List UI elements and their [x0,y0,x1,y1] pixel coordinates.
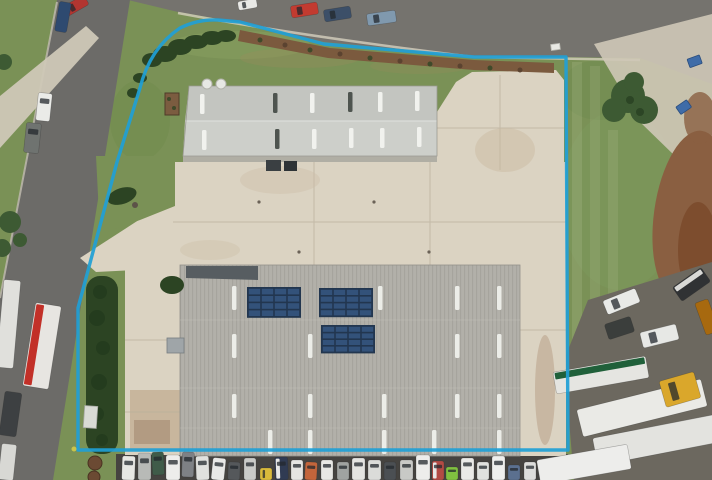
building-a-roof-lower [183,121,437,156]
vehicle-bottom_row [244,458,256,480]
vehicle-body [244,458,256,480]
concrete-stain [180,240,240,260]
skylight-strip [202,130,207,150]
skylight-strip [378,286,383,310]
skylight-strip [232,334,237,358]
tree-shadow [636,108,644,116]
vehicle-body [524,462,536,480]
solar-array [321,325,375,353]
vehicle-windshield [40,98,50,104]
aerial-photo-stage [0,0,712,480]
boundary-marker-post [551,43,561,50]
solar-panel-cell [334,303,345,308]
concrete-stain [475,128,535,172]
garden-tuft [160,276,184,294]
skylight-strip [497,334,502,358]
vehicle-bottom_row [196,456,210,480]
vehicle-bottom_row [166,455,180,480]
solar-panel-cell [362,327,373,332]
solar-panel-cell [336,340,347,345]
entry-awning [186,266,258,280]
vehicle-bottom_row [477,462,489,480]
solar-panel-cell [336,333,347,338]
vehicle-windshield [28,129,39,135]
skylight-strip [380,128,385,148]
shrub [258,38,263,43]
solar-array [319,288,373,317]
vehicle-bottom_row [151,452,164,476]
skylight-strip [275,129,280,149]
solar-panel-cell [321,303,332,308]
vehicle-stripe [276,459,281,479]
skylight-strip [232,286,237,310]
skylight-strip [382,394,387,418]
hedge-bush [93,285,107,299]
shrub [428,62,433,67]
vehicle-body [368,460,381,480]
rock [132,202,138,208]
vehicle-windshield [168,460,178,465]
vehicle-windshield [479,466,487,469]
solar-panel-cell [347,297,358,302]
skylight-strip [415,91,420,111]
round-tank [88,471,100,480]
apron-stain [134,420,170,444]
vehicle-body [400,460,413,480]
vehicle-windshield [373,14,380,23]
vehicle-bottom_row [492,456,505,480]
tree [602,98,626,122]
solar-panel-cell [262,303,273,309]
skylight-strip [497,394,502,418]
solar-panel-cell [323,333,334,338]
solar-panel-cell [321,310,332,315]
solar-panel-cell [349,327,360,332]
vehicle-windshield [230,465,238,469]
solar-panel-cell [362,347,373,352]
solar-panel-cell [336,347,347,352]
vehicle-bottom_row [337,462,349,480]
solar-panel-cell [347,290,358,295]
vehicle-bottom_row [432,461,444,480]
vehicle-body [182,452,195,477]
round-tank [88,456,102,470]
vehicle-windshield [386,466,394,469]
drain-pit [257,200,260,203]
vehicle-windshield [246,462,254,466]
vehicle-left_road [23,122,41,153]
hedge-bush [96,341,110,355]
vehicle-body [151,452,164,476]
solar-panel-cell [349,347,360,352]
solar-panel-cell [347,310,358,315]
vehicle-windshield [184,457,192,462]
solar-panel-cell [334,290,345,295]
solar-panel-cell [362,340,373,345]
vehicle-body [352,458,365,480]
vehicle-left_road [36,92,53,121]
vehicle-bottom_row [228,462,241,480]
solar-panel-cell [275,289,286,295]
vehicle-windshield [277,461,286,465]
solar-panel-cell [334,310,345,315]
vehicle-bottom_row [368,460,381,480]
electrical-box [167,338,184,353]
solar-panel-cell [249,289,260,295]
vehicle-windshield [434,465,442,468]
skylight-strip [455,286,460,310]
solar-panel-cell [288,310,299,316]
vehicle-windshield [140,458,149,463]
vehicle-bottom_row [524,462,536,480]
vehicle-body [305,462,318,480]
solar-panel-cell [249,296,260,302]
vehicle-bottom_row [122,456,136,480]
boundary-corner-marker [72,447,77,452]
drain-pit [297,250,300,253]
vehicle-windshield [418,460,428,465]
vehicle-body [508,465,520,480]
shrub [172,106,176,110]
shrub [368,56,373,61]
vehicle-windshield [124,461,133,466]
vehicle-windshield [323,464,331,468]
vehicle-body [211,457,226,480]
skylight-strip [308,334,313,358]
vehicle-bottom_row [384,462,396,480]
vehicle-body [23,122,41,153]
solar-panel-cell [288,289,299,295]
vehicle-bottom_row [291,460,303,480]
skylight-strip [348,92,353,112]
solar-panel-cell [249,303,260,309]
vehicle-windshield [339,466,347,469]
skylight-strip [417,127,422,147]
shrub [167,97,171,101]
shrub [308,48,313,53]
vehicle-bottom_row [352,458,365,480]
vehicle-windshield [526,466,534,469]
skylight-strip [232,394,237,418]
skylight-strip [378,92,383,112]
solar-panel-cell [262,310,273,316]
drain-pit [372,200,375,203]
solar-panel-cell [360,297,371,302]
vehicle-bottom_row [305,462,318,480]
building-south-warehouse [160,265,520,456]
skylight-strip [312,129,317,149]
solar-panel-cell [323,327,334,332]
solar-panel-cell [362,333,373,338]
white-container [83,406,98,429]
shrub [398,59,403,64]
aerial-photo [0,0,712,480]
vehicle-body [122,456,136,480]
vehicle-bottom_row [508,465,520,480]
solar-panel-cell [275,303,286,309]
roof-dome-vent [216,79,226,89]
hedge-bush [89,310,105,326]
ac-unit [284,161,297,171]
vehicle-body [416,455,430,480]
vehicle-windshield [293,464,301,468]
hedge-bush [216,30,236,42]
solar-panel-cell [349,340,360,345]
vehicle-body [36,92,53,121]
skylight-strip [455,394,460,418]
solar-array [247,287,301,318]
shrub [283,43,288,48]
solar-panel-cell [321,290,332,295]
skylight-strip [308,394,313,418]
tree [13,233,27,247]
solar-panel-cell [275,310,286,316]
vehicle-body [446,467,458,480]
shrub [488,66,493,71]
solar-panel-cell [336,327,347,332]
vehicle-windshield [370,464,379,468]
vehicle-windshield [263,470,265,478]
vehicle-windshield [510,468,518,471]
tree-shadow [626,96,634,104]
vehicle-windshield [198,461,207,466]
vehicle-body [291,460,303,480]
ac-unit [266,160,281,171]
vehicle-body [492,456,505,480]
vehicle-body [337,462,349,480]
solar-panel-cell [288,296,299,302]
vehicle-windshield [307,465,315,469]
garden-box [165,93,179,115]
vehicle-bottom_row [275,457,289,480]
skylight-strip [455,334,460,358]
vehicle-body [461,458,474,480]
vehicle-body [196,456,210,480]
solar-panel-cell [288,303,299,309]
solar-panel-cell [347,303,358,308]
solar-panel-cell [275,296,286,302]
vehicle-bottom_row [260,468,272,480]
vehicle-windshield [448,470,456,472]
tree [0,211,21,233]
shrub [518,68,523,73]
vehicle-body [166,455,180,480]
vehicle-body [228,462,241,480]
vehicle-windshield [463,462,472,466]
solar-panel-cell [249,310,260,316]
shrub [458,64,463,69]
vehicle-bottom_row [321,460,333,480]
solar-panel-cell [360,290,371,295]
tree [624,72,644,92]
vehicle-bottom_row [461,458,474,480]
shrub [338,52,343,57]
vehicle-windshield [402,464,411,468]
solar-panel-cell [262,289,273,295]
vehicle-body [384,462,396,480]
solar-panel-cell [334,297,345,302]
skylight-strip [273,93,278,113]
hedge-bush [96,434,108,446]
vehicle-bottom_row [211,457,226,480]
building-north-warehouse [165,79,437,171]
tree [630,96,658,124]
solar-panel-cell [262,296,273,302]
solar-panel-cell [349,333,360,338]
vehicle-body [260,468,272,480]
vehicle-windshield [494,461,503,465]
skylight-strip [349,128,354,148]
concrete-stain [535,335,555,445]
vehicle-bottom_row [446,467,458,480]
solar-panel-cell [323,347,334,352]
solar-panel-cell [360,303,371,308]
vehicle-bottom_row [182,452,195,477]
vehicle-windshield [154,456,162,461]
mow-stripe [572,62,582,352]
vehicle-body [321,460,333,480]
drain-pit [427,250,430,253]
solar-panel-cell [323,340,334,345]
vehicle-bottom_row [138,453,151,480]
vehicle-body [138,453,151,480]
solar-panel-cell [360,310,371,315]
skylight-strip [310,93,315,113]
roof-dome-vent [202,79,212,89]
solar-panel-cell [321,297,332,302]
skylight-strip [200,94,205,114]
vehicle-body [477,462,489,480]
hedge-bush [91,374,107,390]
vehicle-windshield [354,462,363,466]
skylight-strip [497,286,502,310]
vehicle-bottom_row [416,455,430,480]
vehicle-bottom_row [400,460,413,480]
